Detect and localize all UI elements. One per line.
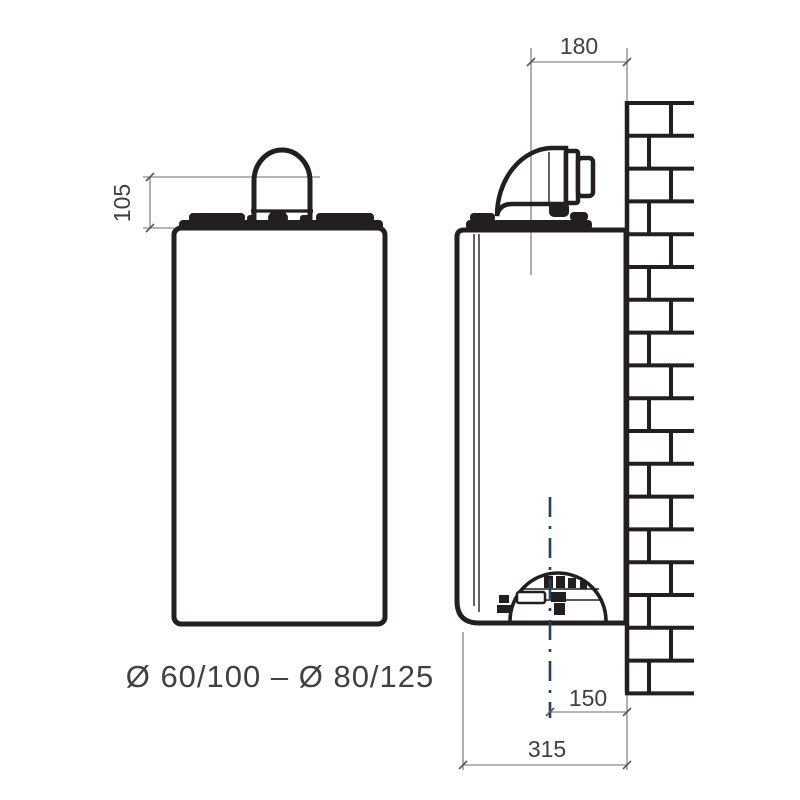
dim-180-label: 180 — [560, 33, 598, 59]
wall-bricks — [625, 101, 694, 693]
front-body — [174, 228, 385, 624]
flue-coupling-outer — [578, 158, 593, 196]
dim-105-label: 105 — [109, 184, 135, 222]
boiler-dimension-diagram: 105 — [0, 0, 800, 800]
dim-105: 105 — [109, 173, 174, 232]
dim-180: 180 — [527, 33, 631, 101]
dome-valve — [517, 592, 545, 603]
front-view — [143, 150, 385, 624]
side-body — [457, 230, 626, 623]
front-center-cap — [268, 210, 288, 226]
bottom-connections-dome — [497, 573, 606, 621]
dim-150-label: 150 — [569, 685, 607, 711]
brick-course-lines — [625, 103, 694, 693]
flue-diameter-caption: Ø 60/100 – Ø 80/125 — [126, 659, 435, 694]
dim-315-label: 315 — [528, 736, 566, 762]
side-view — [457, 48, 626, 718]
technical-drawing-page: 105 — [0, 0, 800, 800]
